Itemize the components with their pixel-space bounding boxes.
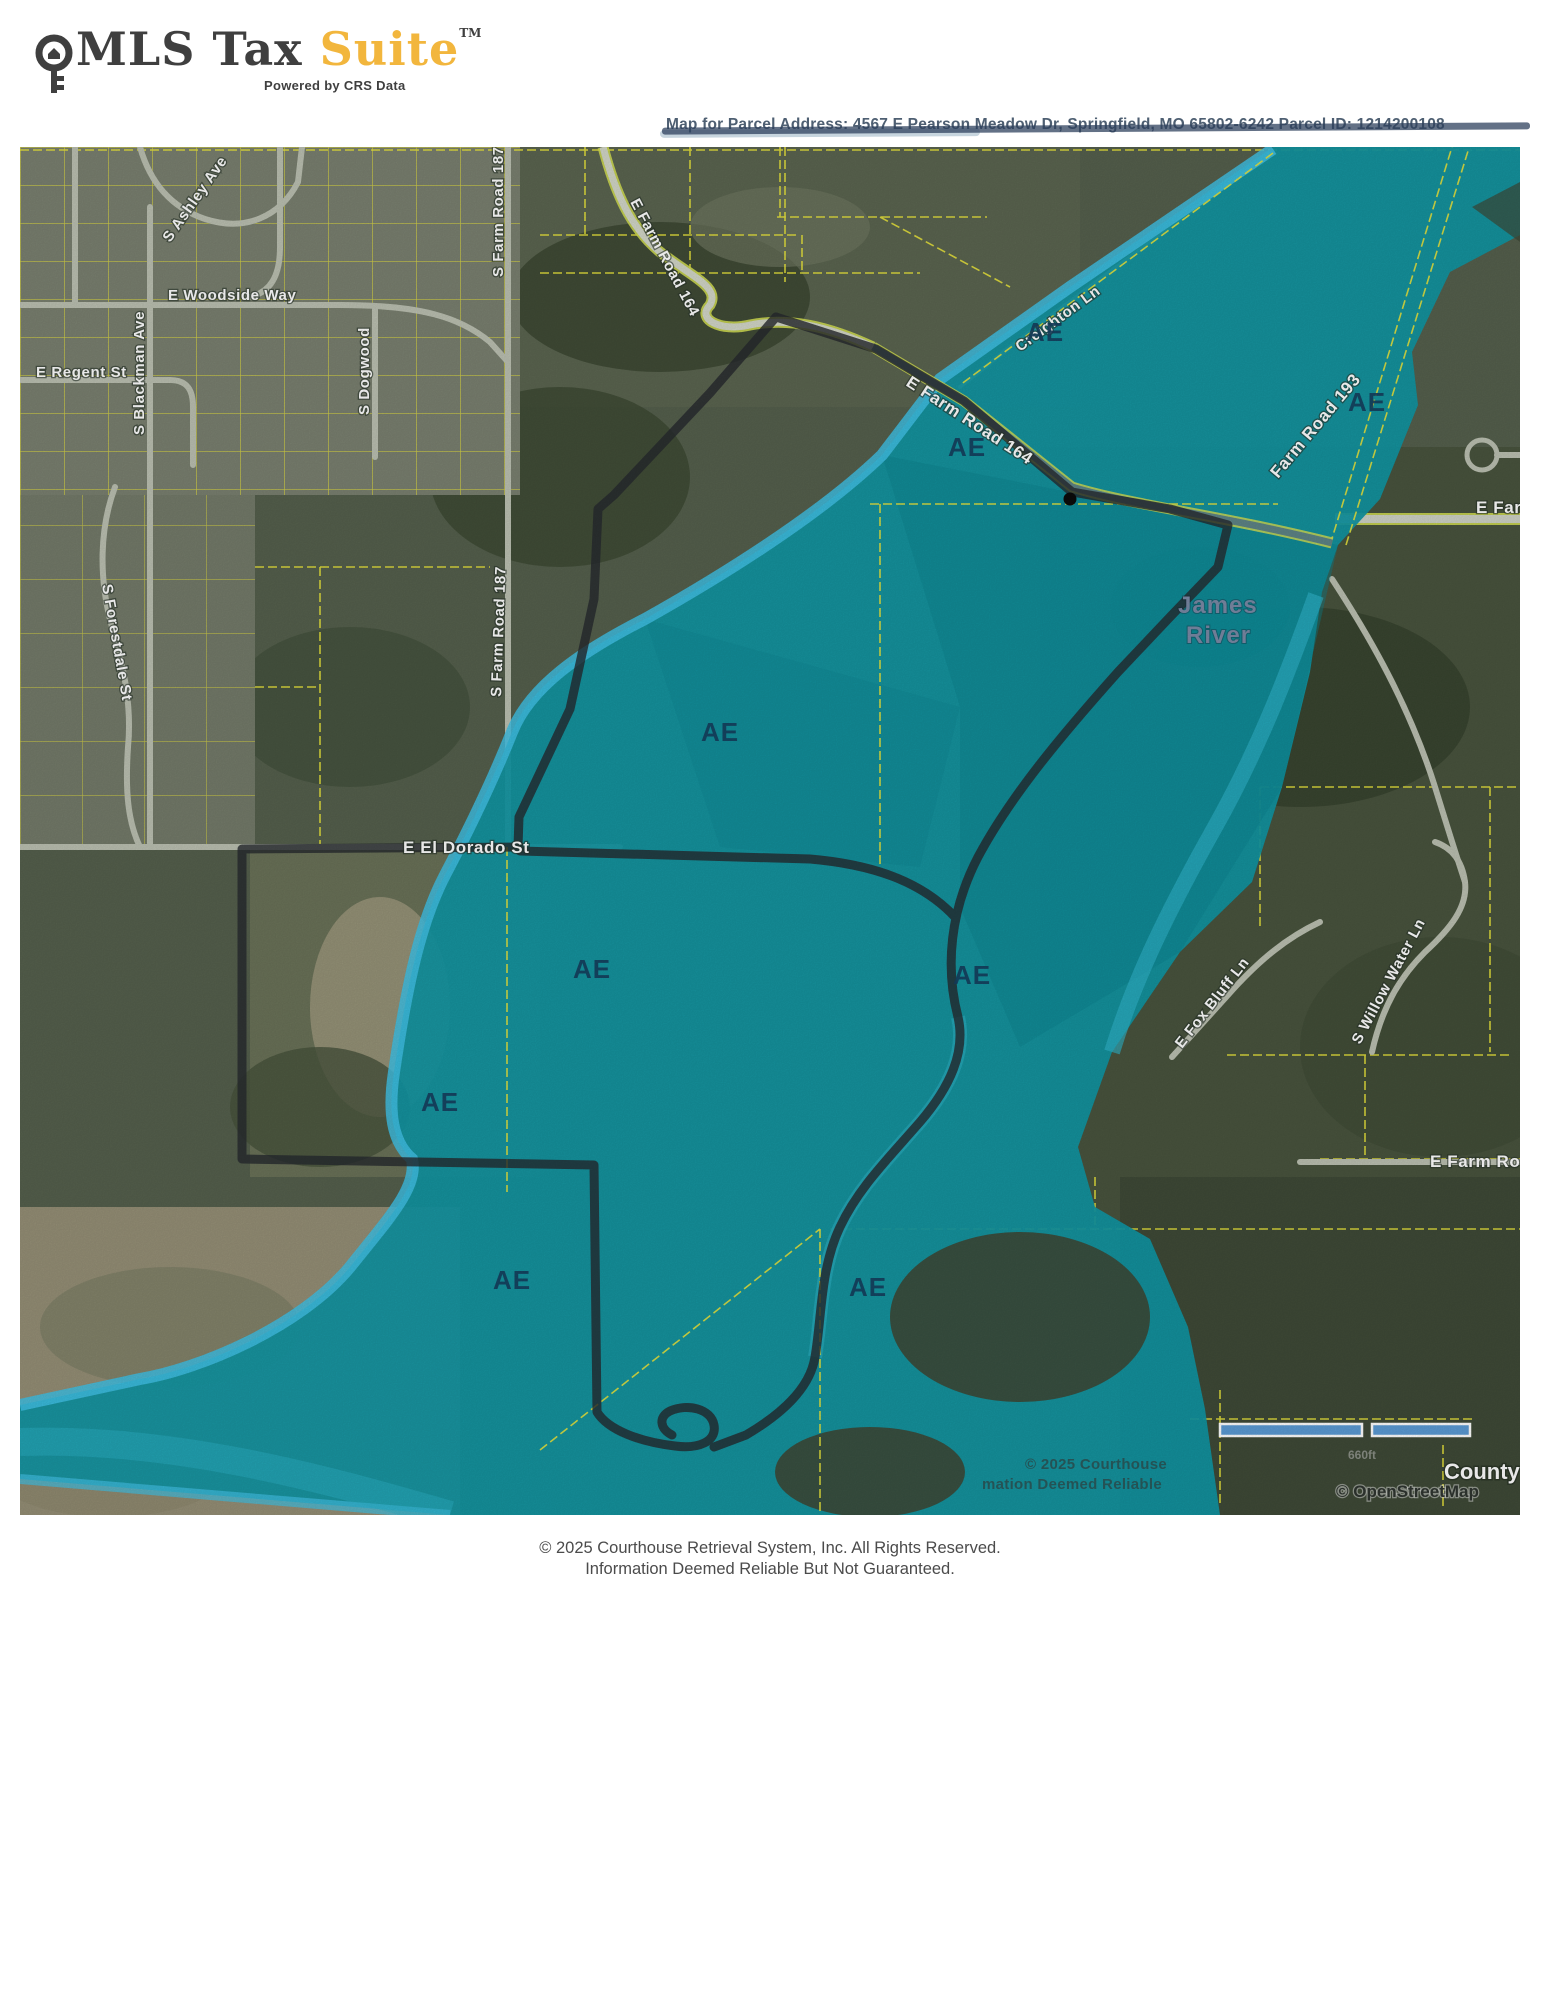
scan-noise-overlay [20, 147, 1520, 1515]
trademark-mark: TM [459, 26, 481, 40]
mls-tax-suite-logo: MLS Tax SuiteTM Powered by CRS Data [14, 8, 484, 100]
page: MLS Tax SuiteTM Powered by CRS Data Map … [0, 0, 1545, 2000]
footer-line1: © 2025 Courthouse Retrieval System, Inc.… [20, 1538, 1520, 1559]
brand-primary: MLS Tax [76, 22, 303, 76]
key-icon [14, 8, 78, 100]
brand-accent: Suite [320, 22, 460, 76]
footer-copyright: © 2025 Courthouse Retrieval System, Inc.… [20, 1538, 1520, 1580]
parcel-address-banner: Map for Parcel Address: 4567 E Pearson M… [666, 116, 1536, 140]
brand-tagline: Powered by CRS Data [264, 78, 406, 93]
footer-line2: Information Deemed Reliable But Not Guar… [20, 1559, 1520, 1580]
flood-map: E Farm Road 164 E Farm Road 164 Creighto… [20, 147, 1520, 1515]
brand-text: MLS Tax SuiteTM [76, 22, 481, 76]
flood-map-canvas: E Farm Road 164 E Farm Road 164 Creighto… [20, 147, 1520, 1515]
